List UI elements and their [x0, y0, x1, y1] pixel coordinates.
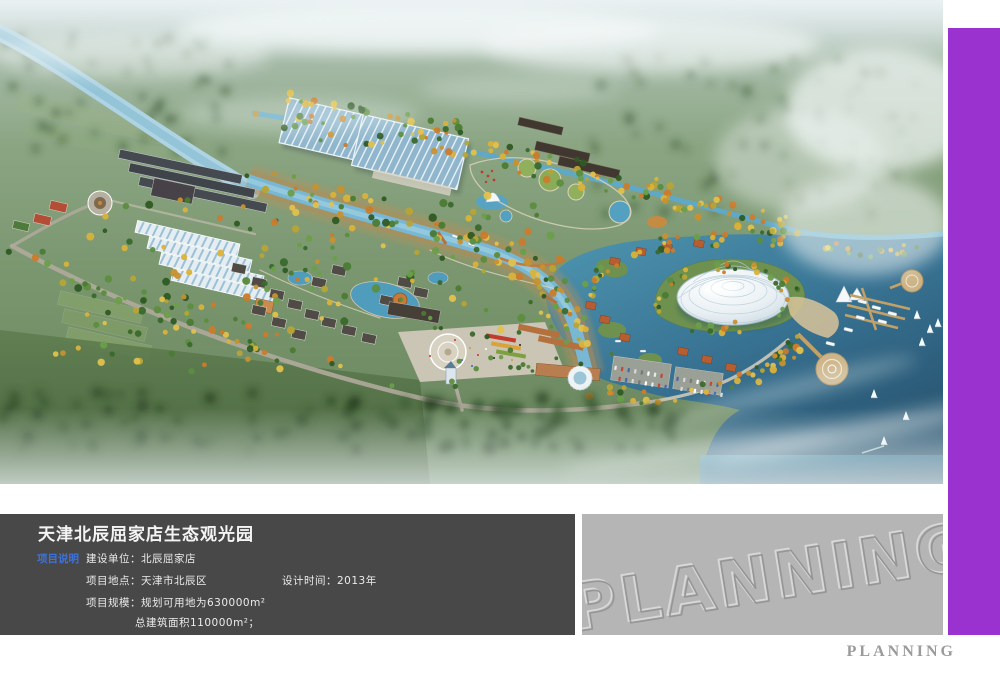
watermark-panel: PLANNING PLANNING	[582, 514, 943, 635]
scale-text: 项目规模：规划可用地为630000m²	[86, 597, 266, 609]
design-time-text: 设计时间：2013年	[282, 573, 377, 588]
info-row-builder: 建设单位：北辰屈家店	[86, 551, 567, 566]
watermark-text: PLANNING	[582, 514, 943, 635]
page-title: 天津北辰屈家店生态观光园	[38, 520, 254, 545]
builder-text: 建设单位：北辰屈家店	[86, 553, 196, 565]
accent-bar	[948, 28, 1000, 635]
rendering-canvas	[0, 0, 943, 484]
round-pier	[901, 270, 923, 292]
watermark-graphic: PLANNING PLANNING	[582, 514, 943, 635]
project-info-panel: 天津北辰屈家店生态观光园 项目说明 建设单位：北辰屈家店 项目地点：天津市北辰区…	[0, 514, 575, 635]
aerial-masterplan-rendering	[0, 0, 943, 484]
location-text: 项目地点：天津市北辰区	[86, 575, 207, 587]
info-row-floor-area: 总建筑面积110000m²；	[135, 615, 567, 630]
footer-brand: PLANNING	[847, 643, 956, 661]
info-row-location: 项目地点：天津市北辰区 设计时间：2013年	[86, 573, 567, 588]
info-row-scale: 项目规模：规划可用地为630000m²	[86, 595, 567, 610]
project-description-tag: 项目说明	[37, 551, 79, 566]
floor-area-text: 总建筑面积110000m²；	[135, 617, 260, 629]
